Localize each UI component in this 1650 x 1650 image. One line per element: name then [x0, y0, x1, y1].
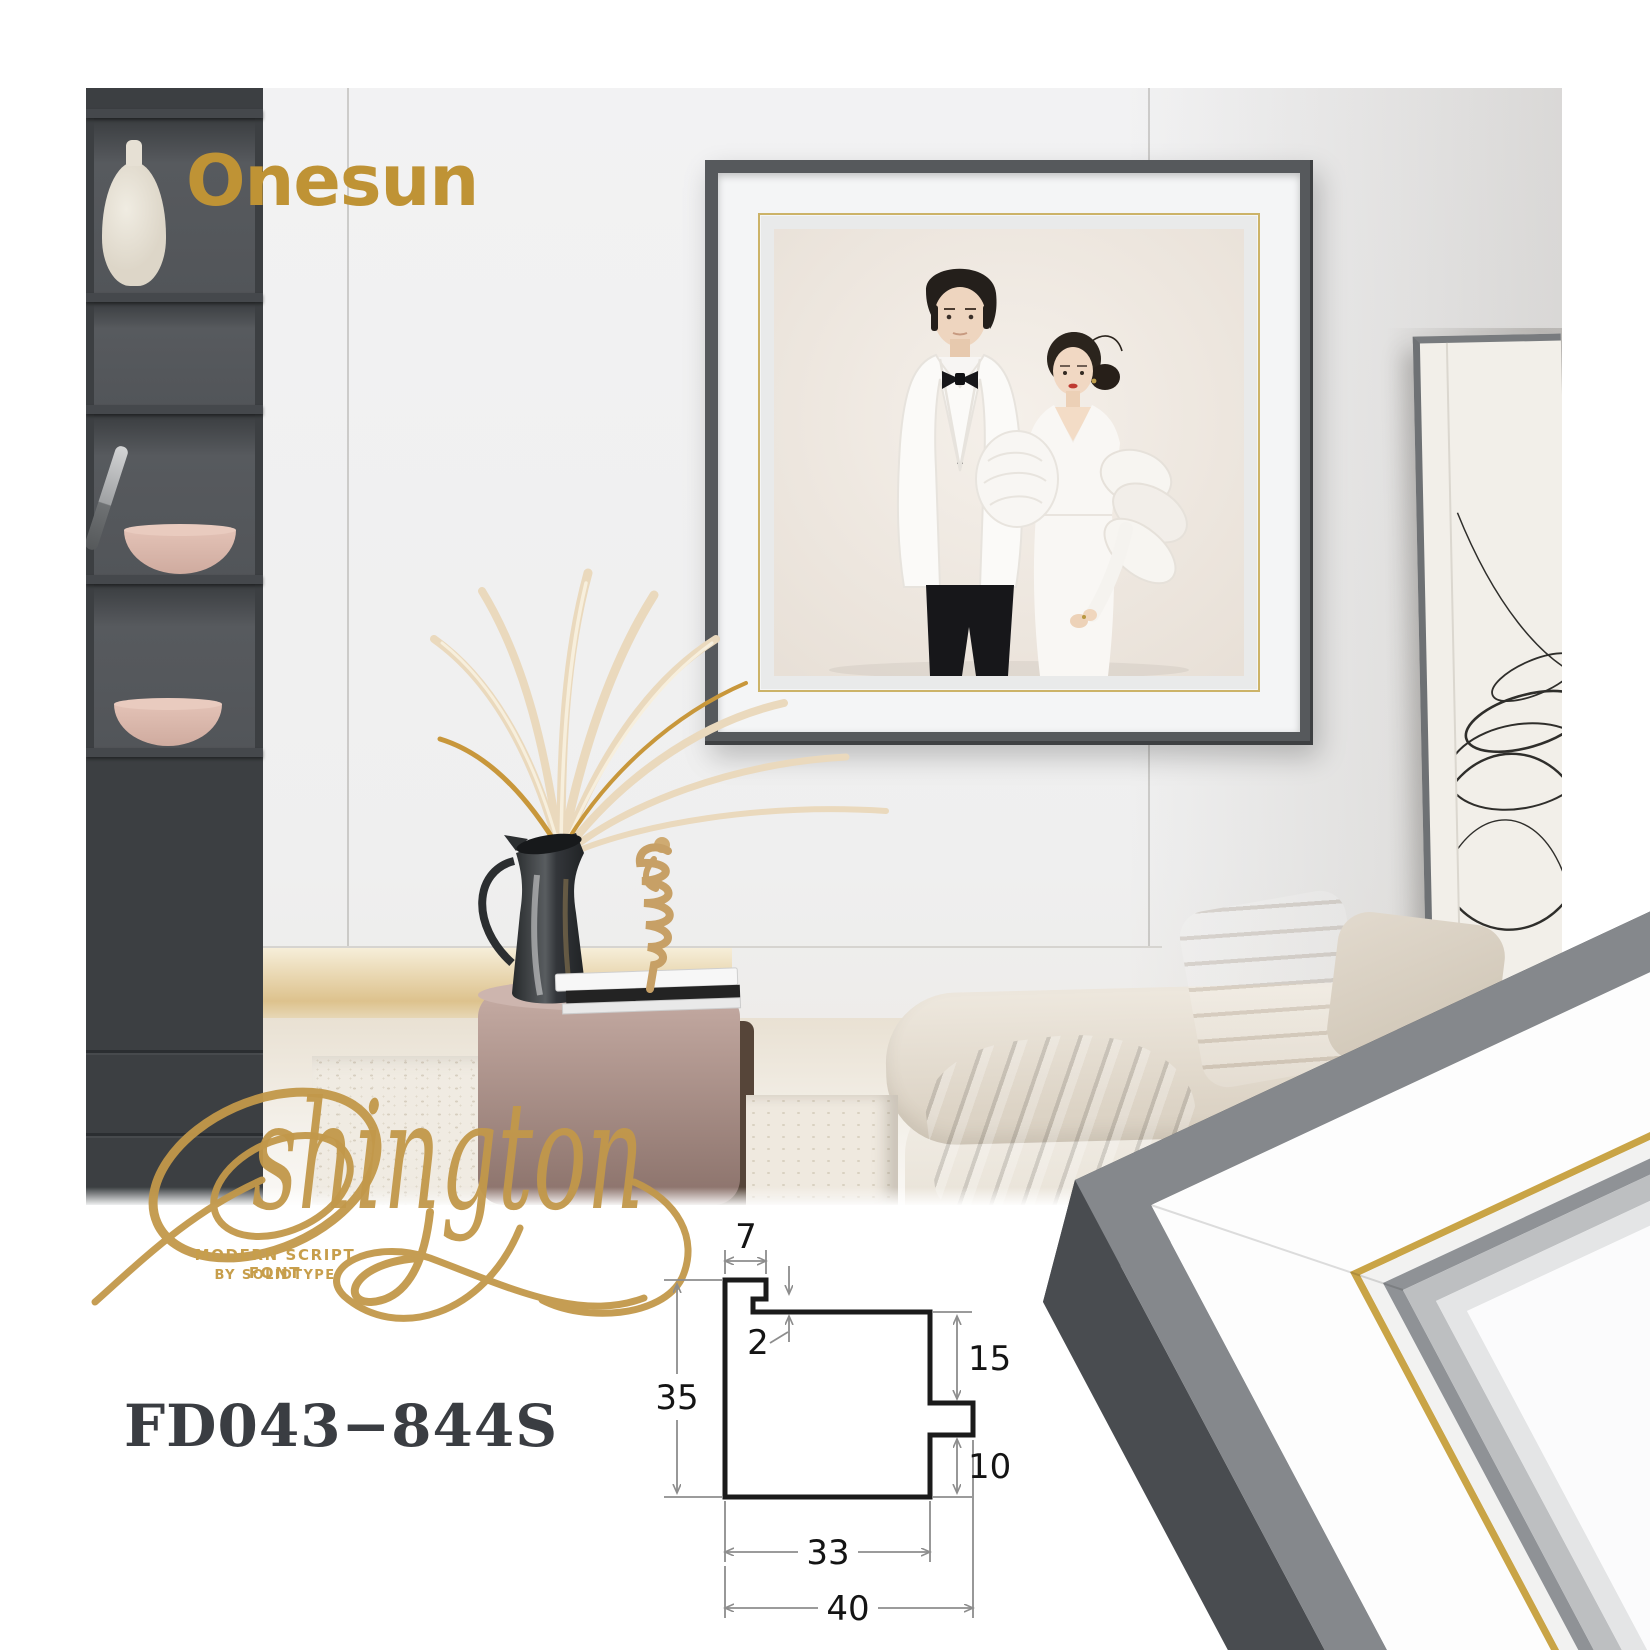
dim-upper-rabbet: 15 [968, 1339, 1010, 1379]
dim-overall-width: 40 [826, 1589, 869, 1629]
frame-side-face-2 [1043, 1180, 1450, 1650]
dim-top-lip-width: 7 [735, 1217, 757, 1257]
dim-lower-back: 10 [968, 1447, 1010, 1487]
room-photo [86, 88, 1562, 1205]
product-code: FD043−844S [124, 1392, 558, 1460]
watermark-tagline-2: BY SOLIDTYPE [168, 1268, 382, 1283]
scene-bottom-fade [86, 1187, 1562, 1205]
product-poster: shington Onesun MODERN SCRIPT FONT BY SO… [0, 0, 1650, 1650]
dim-lip-thickness: 2 [747, 1323, 769, 1363]
pampas-plant [434, 573, 886, 857]
gold-figurine [640, 837, 670, 989]
miter-seam [1151, 1205, 1403, 1290]
dim-overall-height: 35 [655, 1378, 698, 1418]
drawer-line [86, 1050, 263, 1053]
side-table [478, 979, 740, 1205]
cream-pillow [1323, 908, 1508, 1077]
dim-body-width: 33 [806, 1533, 849, 1573]
shelf-unit [86, 88, 263, 1205]
brand-logo: Onesun [186, 140, 478, 222]
moulding-diagram: 7 2 35 15 10 33 40 [630, 1210, 1010, 1640]
drawer-line [86, 1133, 263, 1136]
